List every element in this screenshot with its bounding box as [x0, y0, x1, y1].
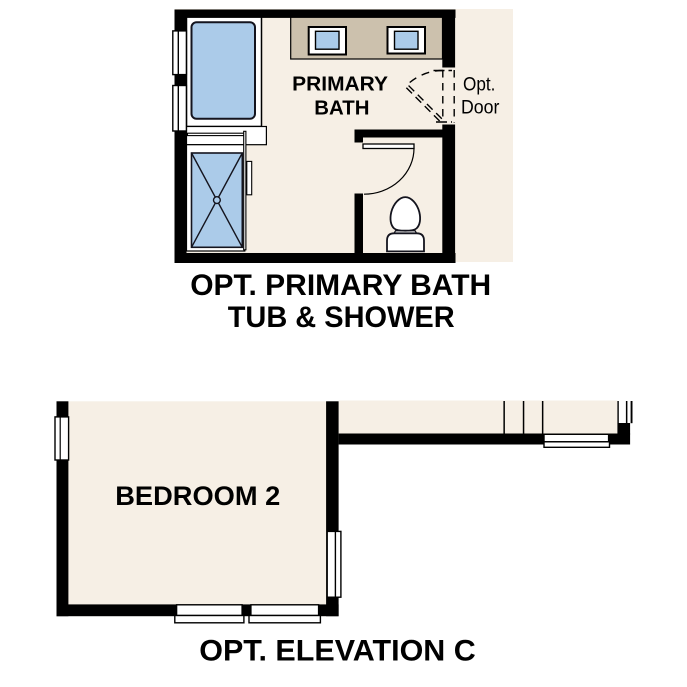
- svg-text:BATH: BATH: [314, 97, 369, 119]
- svg-text:OPT. PRIMARY BATH: OPT. PRIMARY BATH: [190, 269, 491, 302]
- svg-text:BEDROOM 2: BEDROOM 2: [115, 481, 280, 511]
- svg-text:Opt.: Opt.: [463, 74, 495, 95]
- svg-text:PRIMARY: PRIMARY: [292, 74, 388, 96]
- svg-text:Door: Door: [461, 98, 500, 119]
- svg-text:TUB & SHOWER: TUB & SHOWER: [228, 301, 455, 334]
- svg-text:OPT. ELEVATION C: OPT. ELEVATION C: [199, 635, 476, 668]
